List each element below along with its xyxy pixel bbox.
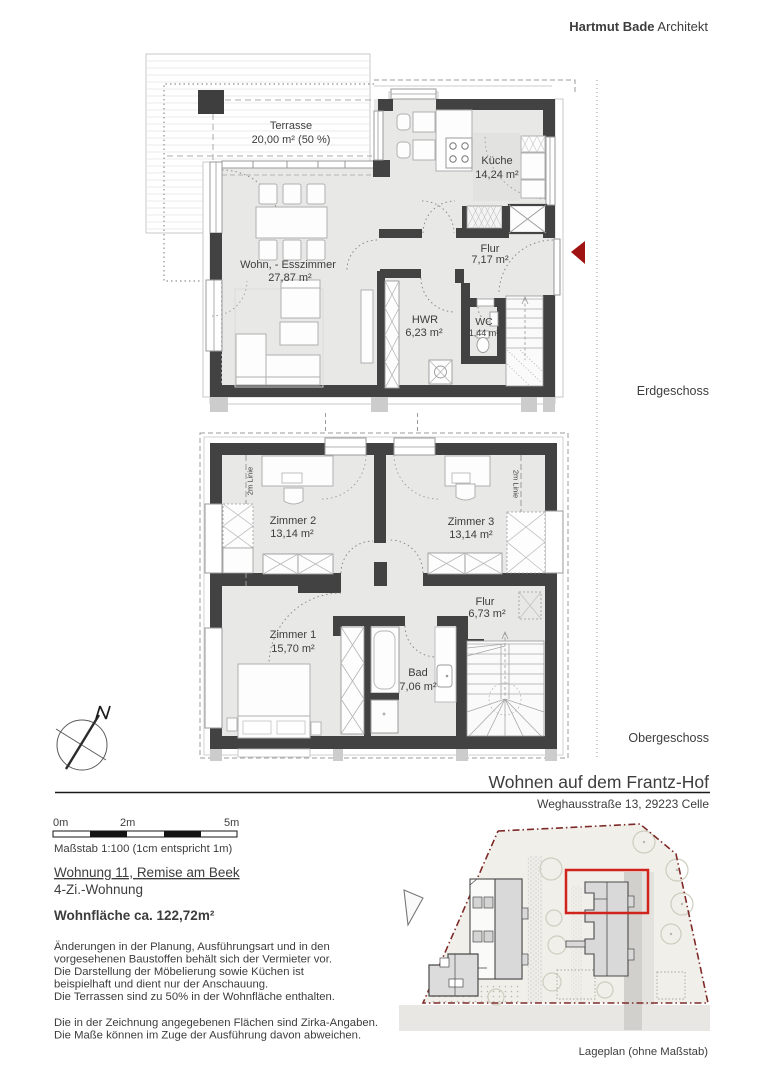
svg-text:Erdgeschoss: Erdgeschoss [637,384,709,398]
svg-text:15,70 m²: 15,70 m² [271,643,315,655]
svg-text:4-Zi.-Wohnung: 4-Zi.-Wohnung [54,882,143,897]
svg-text:Bad: Bad [408,667,428,679]
svg-text:beispielhaft und dient nur der: beispielhaft und dient nur der Anschauun… [54,979,268,991]
svg-text:Wohnung 11, Remise am Beek: Wohnung 11, Remise am Beek [54,865,240,880]
svg-text:7,06 m²: 7,06 m² [399,681,437,693]
svg-text:Maßstab 1:100 (1cm entspricht: Maßstab 1:100 (1cm entspricht 1m) [54,843,233,855]
svg-text:Wohnen auf dem Frantz-Hof: Wohnen auf dem Frantz-Hof [489,772,710,792]
svg-text:Küche: Küche [481,155,512,167]
svg-text:2m Linie: 2m Linie [246,467,255,495]
svg-text:Zimmer 2: Zimmer 2 [270,515,316,527]
svg-text:HWR: HWR [412,314,438,326]
svg-text:Die in der Zeichnung angegeben: Die in der Zeichnung angegebenen Flächen… [54,1017,378,1029]
svg-text:6,23 m²: 6,23 m² [405,327,443,339]
svg-text:Lageplan (ohne Maßstab): Lageplan (ohne Maßstab) [579,1046,709,1058]
svg-text:Obergeschoss: Obergeschoss [628,731,709,745]
svg-text:2m Linie: 2m Linie [512,470,521,498]
svg-text:Flur: Flur [476,596,495,608]
svg-text:Wohnfläche ca. 122,72m²: Wohnfläche ca. 122,72m² [54,908,215,923]
svg-text:20,00 m² (50 %): 20,00 m² (50 %) [252,134,331,146]
svg-text:13,14 m²: 13,14 m² [449,529,493,541]
svg-text:Änderungen in der Planung, Aus: Änderungen in der Planung, Ausführungsar… [54,941,330,953]
svg-text:Hartmut Bade Architekt: Hartmut Bade Architekt [569,19,708,34]
svg-text:7,17 m²: 7,17 m² [471,254,509,266]
svg-text:0m: 0m [53,817,68,829]
svg-text:Weghausstraße 13, 29223 Celle: Weghausstraße 13, 29223 Celle [537,797,709,811]
svg-text:13,14 m²: 13,14 m² [270,528,314,540]
svg-text:Die Darstellung der Möbelierun: Die Darstellung der Möbelierung sowie Kü… [54,966,305,978]
svg-text:5m: 5m [224,817,239,829]
svg-text:14,24 m²: 14,24 m² [475,169,519,181]
svg-text:Terrasse: Terrasse [270,120,312,132]
svg-text:6,73 m²: 6,73 m² [468,608,506,620]
svg-text:27,87 m²: 27,87 m² [268,272,312,284]
svg-text:vorgesehenen Baustoffen behält: vorgesehenen Baustoffen behält sich der … [54,954,332,966]
svg-text:Zimmer 1: Zimmer 1 [270,629,316,641]
svg-text:Wohn, - Esszimmer: Wohn, - Esszimmer [240,259,336,271]
svg-text:1,44 m²: 1,44 m² [469,328,500,338]
svg-text:WC: WC [475,316,493,328]
svg-text:2m: 2m [120,817,135,829]
svg-text:Die Maße können im Zuge der Au: Die Maße können im Zuge der Ausführung d… [54,1030,361,1042]
svg-text:Die Terrassen sind zu 50% in: Die Terrassen sind zu 50% in der Wohnflä… [54,991,335,1003]
svg-text:Zimmer 3: Zimmer 3 [448,516,494,528]
